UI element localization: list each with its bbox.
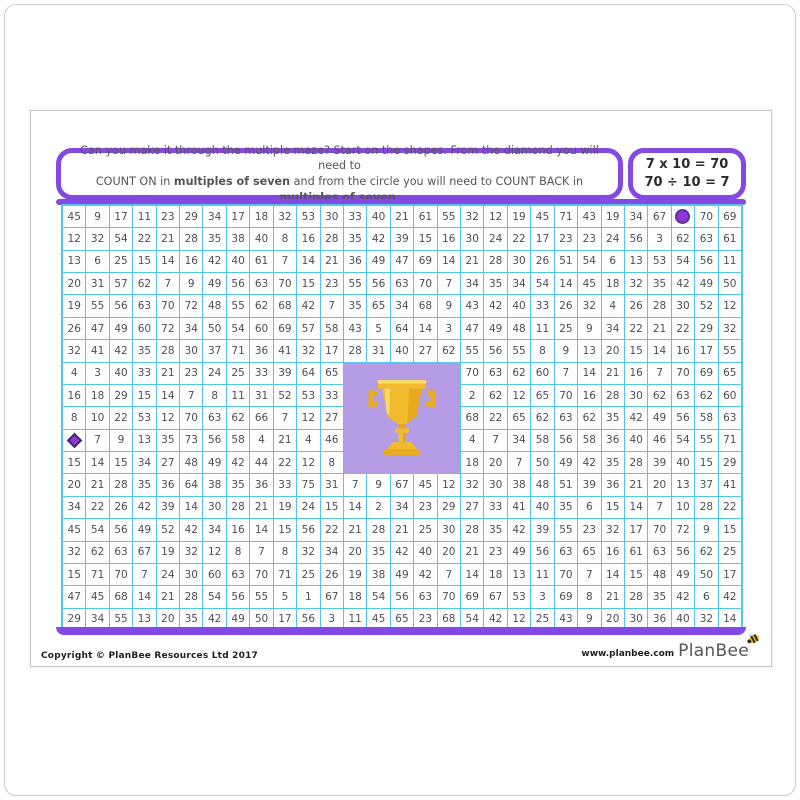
grid-cell: 11 [531,564,553,585]
grid-cell: 40 [391,340,413,361]
grid-cell: 40 [531,497,553,518]
grid-cell: 25 [719,542,741,563]
grid-cell: 25 [414,519,436,540]
grid-cell: 26 [321,564,343,585]
grid-cell: 55 [86,295,108,316]
grid-cell: 7 [648,497,670,518]
grid-cell: 45 [63,206,85,227]
grid-cell: 40 [227,251,249,272]
instruction-line-1: Can you make it through the multiple maz… [69,143,610,174]
grid-cell: 8 [203,385,225,406]
grid-cell: 12 [484,206,506,227]
grid-cell: 32 [180,542,202,563]
grid-cell: 67 [321,586,343,607]
grid-cell: 42 [110,340,132,361]
grid-cell: 27 [321,407,343,428]
worksheet-sheet: Can you make it through the multiple maz… [30,110,772,667]
grid-cell: 22 [321,519,343,540]
grid-cell: 7 [648,363,670,384]
grid-cell: 26 [110,497,132,518]
grid-cell: 14 [625,497,647,518]
grid-cell: 15 [133,385,155,406]
grid-cell: 30 [203,497,225,518]
grid-cell: 51 [555,251,577,272]
grid-cell: 34 [321,542,343,563]
grid-cell: 32 [602,519,624,540]
grid-cell: 28 [602,385,624,406]
grid-cell: 49 [133,519,155,540]
grid-cell: 24 [484,228,506,249]
grid-cell: 52 [157,519,179,540]
grid-cell: 46 [321,430,343,451]
grid-cell: 34 [133,452,155,473]
grid-cell: 28 [648,295,670,316]
grid-cell: 2 [367,497,389,518]
grid-cell: 56 [110,295,132,316]
grid-cell: 55 [695,430,717,451]
grid-cell: 54 [672,251,694,272]
grid-cell: 45 [531,206,553,227]
diamond-start-marker [66,433,82,449]
grid-cell: 54 [110,228,132,249]
grid-cell: 23 [555,228,577,249]
grid-cell: 12 [297,452,319,473]
grid-cell: 54 [227,318,249,339]
grid-cell: 39 [274,363,296,384]
grid-cell: 7 [321,295,343,316]
grid-cell: 49 [508,542,530,563]
grid-cell: 60 [531,363,553,384]
grid-cell: 18 [86,385,108,406]
grid-cell: 63 [110,542,132,563]
grid-cell: 26 [555,295,577,316]
grid-cell: 57 [297,318,319,339]
grid-cell: 9 [438,295,460,316]
grid-cell: 49 [391,564,413,585]
grid-cell: 47 [461,318,483,339]
grid-cell: 18 [461,452,483,473]
website-text: www.planbee.com [581,649,674,659]
grid-cell: 8 [63,407,85,428]
grid-cell: 16 [578,385,600,406]
grid-cell: 62 [227,407,249,428]
grid-cell: 15 [274,519,296,540]
grid-cell: 7 [484,430,506,451]
grid-cell: 45 [63,519,85,540]
grid-cell: 60 [250,318,272,339]
grid-cell: 31 [367,340,389,361]
grid-cell: 22 [672,318,694,339]
grid-cell: 58 [227,430,249,451]
grid-cell: 14 [344,497,366,518]
grid-cell: 55 [508,340,530,361]
grid-cell: 62 [578,407,600,428]
grid-cell: 72 [157,318,179,339]
grid-cell: 15 [695,452,717,473]
grid-cell: 23 [578,228,600,249]
grid-cell: 61 [250,251,272,272]
grid-cell: 16 [63,385,85,406]
grid-cell: 54 [672,430,694,451]
grid-cell: 20 [648,474,670,495]
grid-cell: 67 [648,206,670,227]
grid-cell: 56 [227,586,249,607]
grid-cell: 67 [133,542,155,563]
grid-cell: 7 [133,564,155,585]
grid-cell: 35 [203,228,225,249]
grid-cell: 65 [508,407,530,428]
grid-cell: 35 [133,474,155,495]
grid-cell: 55 [250,586,272,607]
grid-cell: 14 [250,519,272,540]
header-row: Can you make it through the multiple maz… [56,148,746,200]
grid-cell: 43 [578,206,600,227]
grid-cell: 62 [648,385,670,406]
grid-cell: 61 [414,206,436,227]
grid-cell: 20 [438,542,460,563]
grid-cell: 7 [250,542,272,563]
grid-cell: 48 [531,474,553,495]
grid-cell: 70 [157,295,179,316]
grid-cell: 35 [648,586,670,607]
grid-cell: 55 [438,206,460,227]
grid-cell: 33 [484,497,506,518]
grid-cell: 67 [484,586,506,607]
grid-cell: 62 [133,273,155,294]
grid-cell: 33 [250,363,272,384]
grid-cell: 19 [602,206,624,227]
grid-cell: 46 [648,430,670,451]
grid-cell: 63 [672,385,694,406]
grid-cell: 33 [274,474,296,495]
grid-cell: 12 [297,407,319,428]
copyright-text: Copyright © PlanBee Resources Ltd 2017 [41,651,258,661]
grid-cell: 42 [391,542,413,563]
grid-cell: 15 [133,251,155,272]
grid-cell: 40 [508,295,530,316]
grid-cell: 13 [508,564,530,585]
grid-cell: 54 [367,586,389,607]
grid-cell: 14 [461,564,483,585]
grid-cell: 58 [578,430,600,451]
grid-cell: 34 [508,273,530,294]
grid-cell: 57 [110,273,132,294]
grid-cell: 23 [321,273,343,294]
grid-cell: 43 [461,295,483,316]
grid-cell: 12 [508,385,530,406]
grid-cell: 42 [133,497,155,518]
grid-cell: 30 [321,206,343,227]
grid-cell: 14 [438,251,460,272]
grid-cell: 63 [648,542,670,563]
grid-cell: 31 [250,385,272,406]
grid-cell: 38 [367,564,389,585]
grid-cell: 31 [86,273,108,294]
grid-cell: 28 [625,586,647,607]
grid-cell: 12 [438,474,460,495]
grid-cell: 53 [508,586,530,607]
grid-cell: 51 [555,474,577,495]
grid-cell: 70 [648,519,670,540]
grid-cell: 19 [508,206,530,227]
grid-cell: 29 [695,318,717,339]
grid-cell: 28 [625,452,647,473]
grid-cell: 42 [508,519,530,540]
grid-cell: 62 [672,228,694,249]
grid-cell: 36 [602,430,624,451]
grid-cell: 35 [344,228,366,249]
grid-cell: 40 [625,430,647,451]
grid-cell: 63 [695,228,717,249]
grid-cell: 63 [133,295,155,316]
grid-cell: 54 [86,519,108,540]
grid-cell: 68 [110,586,132,607]
grid-cell: 35 [648,273,670,294]
trophy-icon [363,375,441,461]
grid-cell: 68 [414,295,436,316]
grid-cell: 16 [602,542,624,563]
grid-cell: 49 [555,452,577,473]
grid-cell: 69 [274,318,296,339]
grid-cell: 49 [648,407,670,428]
grid-cell: 56 [484,340,506,361]
grid-cell: 56 [367,273,389,294]
grid-cell: 30 [672,295,694,316]
grid-cell: 18 [484,564,506,585]
grid-cell: 14 [414,318,436,339]
grid-cell: 41 [274,340,296,361]
grid-cell: 9 [180,273,202,294]
grid-cell: 65 [367,295,389,316]
grid-cell: 39 [157,497,179,518]
grid-cell: 15 [625,340,647,361]
grid-cell: 50 [719,273,741,294]
grid-cell: 28 [484,251,506,272]
grid-cell: 23 [484,542,506,563]
grid-cell: 15 [414,228,436,249]
grid-cell: 42 [203,251,225,272]
grid-cell: 22 [508,228,530,249]
grid-cell: 44 [250,452,272,473]
grid-cell: 21 [157,363,179,384]
grid-cell: 40 [672,452,694,473]
grid-cell: 56 [625,228,647,249]
grid-cell: 15 [625,564,647,585]
grid-cell: 21 [461,251,483,272]
grid-cell: 11 [719,251,741,272]
grid-cell: 8 [578,586,600,607]
grid-cell: 71 [227,340,249,361]
grid-cell: 30 [625,385,647,406]
grid-cell: 54 [578,251,600,272]
grid-cell: 62 [695,542,717,563]
grid-cell: 31 [321,474,343,495]
grid-cell: 39 [391,228,413,249]
grid-cell: 52 [274,385,296,406]
grid-cell: 21 [157,228,179,249]
grid-cell: 35 [602,452,624,473]
grid-cell: 60 [203,564,225,585]
grid-cell: 14 [157,385,179,406]
grid-cell: 33 [344,206,366,227]
grid-cell: 58 [321,318,343,339]
grid-cell: 9 [695,519,717,540]
grid-cell: 73 [180,430,202,451]
grid-cell: 28 [321,228,343,249]
grid-cell: 41 [508,497,530,518]
grid-cell: 40 [110,363,132,384]
grid-cell: 1 [297,586,319,607]
grid-cell: 29 [719,452,741,473]
grid-cell: 15 [719,519,741,540]
grid-cell: 32 [461,474,483,495]
grid-cell: 65 [321,363,343,384]
grid-cell: 9 [578,318,600,339]
grid-cell: 53 [297,385,319,406]
grid-cell: 21 [648,318,670,339]
grid-cell: 70 [180,407,202,428]
grid-cell: 28 [227,497,249,518]
grid-cell: 71 [86,564,108,585]
grid-cell: 21 [274,430,296,451]
grid-cell: 22 [133,228,155,249]
grid-cell: 30 [461,228,483,249]
grid-cell: 16 [672,340,694,361]
grid-cell: 8 [531,340,553,361]
grid-cell: 62 [695,385,717,406]
grid-cell: 4 [63,363,85,384]
grid-cell: 45 [414,474,436,495]
grid-cell: 13 [625,251,647,272]
planbee-logo: www.planbee.com PlanBee [581,633,759,661]
grid-cell: 8 [321,452,343,473]
grid-cell: 35 [555,497,577,518]
grid-cell: 28 [110,474,132,495]
worksheet-page: Can you make it through the multiple maz… [0,0,800,800]
grid-cell: 40 [367,206,389,227]
grid-cell: 47 [391,251,413,272]
grid-cell: 2 [461,385,483,406]
grid-cell: 15 [297,273,319,294]
grid-cell: 15 [321,497,343,518]
grid-cell: 68 [274,295,296,316]
grid-cell: 28 [367,519,389,540]
grid-cell: 29 [438,497,460,518]
grid-cell: 22 [110,407,132,428]
equation-line-2: 70 ÷ 10 = 7 [633,174,741,192]
grid-cell: 69 [555,586,577,607]
grid-cell: 6 [602,251,624,272]
grid-cell: 21 [625,474,647,495]
grid-cell: 55 [719,340,741,361]
grid-cell: 9 [367,474,389,495]
grid-cell: 15 [63,452,85,473]
grid-cell: 34 [508,430,530,451]
grid-cell: 15 [602,497,624,518]
grid-cell: 12 [719,295,741,316]
grid-cell: 32 [63,340,85,361]
grid-cell: 14 [555,273,577,294]
grid-cell: 42 [367,228,389,249]
grid-cell: 30 [180,340,202,361]
grid-cell: 7 [508,452,530,473]
grid-cell: 53 [133,407,155,428]
grid-cell: 30 [508,251,530,272]
grid-cell: 56 [227,273,249,294]
grid-cell: 35 [602,407,624,428]
brand-text: PlanBee [678,641,749,661]
grid-cell: 14 [602,564,624,585]
grid-cell: 18 [344,586,366,607]
grid-cell: 21 [344,519,366,540]
grid-cell [672,206,694,227]
grid-cell: 32 [274,206,296,227]
grid-cell: 24 [297,497,319,518]
grid-cell: 58 [531,430,553,451]
grid-cell: 48 [508,318,530,339]
grid-cell: 70 [250,564,272,585]
grid-cell: 21 [391,206,413,227]
grid-cell: 27 [157,452,179,473]
grid-cell: 11 [531,318,553,339]
grid-cell: 50 [203,318,225,339]
grid-cell: 16 [227,519,249,540]
grid-cell: 63 [555,407,577,428]
grid-cell: 62 [508,363,530,384]
grid-cell: 17 [227,206,249,227]
grid-cell: 42 [227,452,249,473]
grid-cell: 38 [227,228,249,249]
grid-cell: 32 [461,206,483,227]
grid-cell: 32 [719,318,741,339]
grid-cell: 25 [110,251,132,272]
grid-cell: 11 [133,206,155,227]
grid-cell: 24 [203,363,225,384]
grid-cell: 9 [110,430,132,451]
grid-cell: 22 [274,452,296,473]
grid-cell: 14 [86,452,108,473]
grid-cell: 6 [578,497,600,518]
grid-cell: 17 [719,564,741,585]
grid-cell: 36 [344,251,366,272]
grid-cell: 34 [391,497,413,518]
grid-cell: 63 [414,586,436,607]
grid-cell: 70 [555,385,577,406]
grid-cell: 36 [250,474,272,495]
grid-cell: 41 [719,474,741,495]
grid-cell: 39 [531,519,553,540]
grid-cell: 75 [297,474,319,495]
grid-cell: 34 [63,497,85,518]
grid-cell: 11 [227,385,249,406]
grid-cell: 20 [602,340,624,361]
grid-cell: 56 [555,430,577,451]
grid-cell: 55 [344,273,366,294]
grid-cell: 7 [555,363,577,384]
grid-cell: 71 [274,564,296,585]
grid-cell: 72 [180,295,202,316]
grid-cell: 39 [648,452,670,473]
grid-cell: 48 [648,564,670,585]
grid-cell: 70 [414,273,436,294]
grid-cell: 63 [391,273,413,294]
grid-cell: 19 [157,542,179,563]
grid-cell: 5 [367,318,389,339]
grid-cell: 70 [461,363,483,384]
grid-cell: 7 [180,385,202,406]
grid-cell: 4 [297,430,319,451]
grid-cell: 17 [321,340,343,361]
